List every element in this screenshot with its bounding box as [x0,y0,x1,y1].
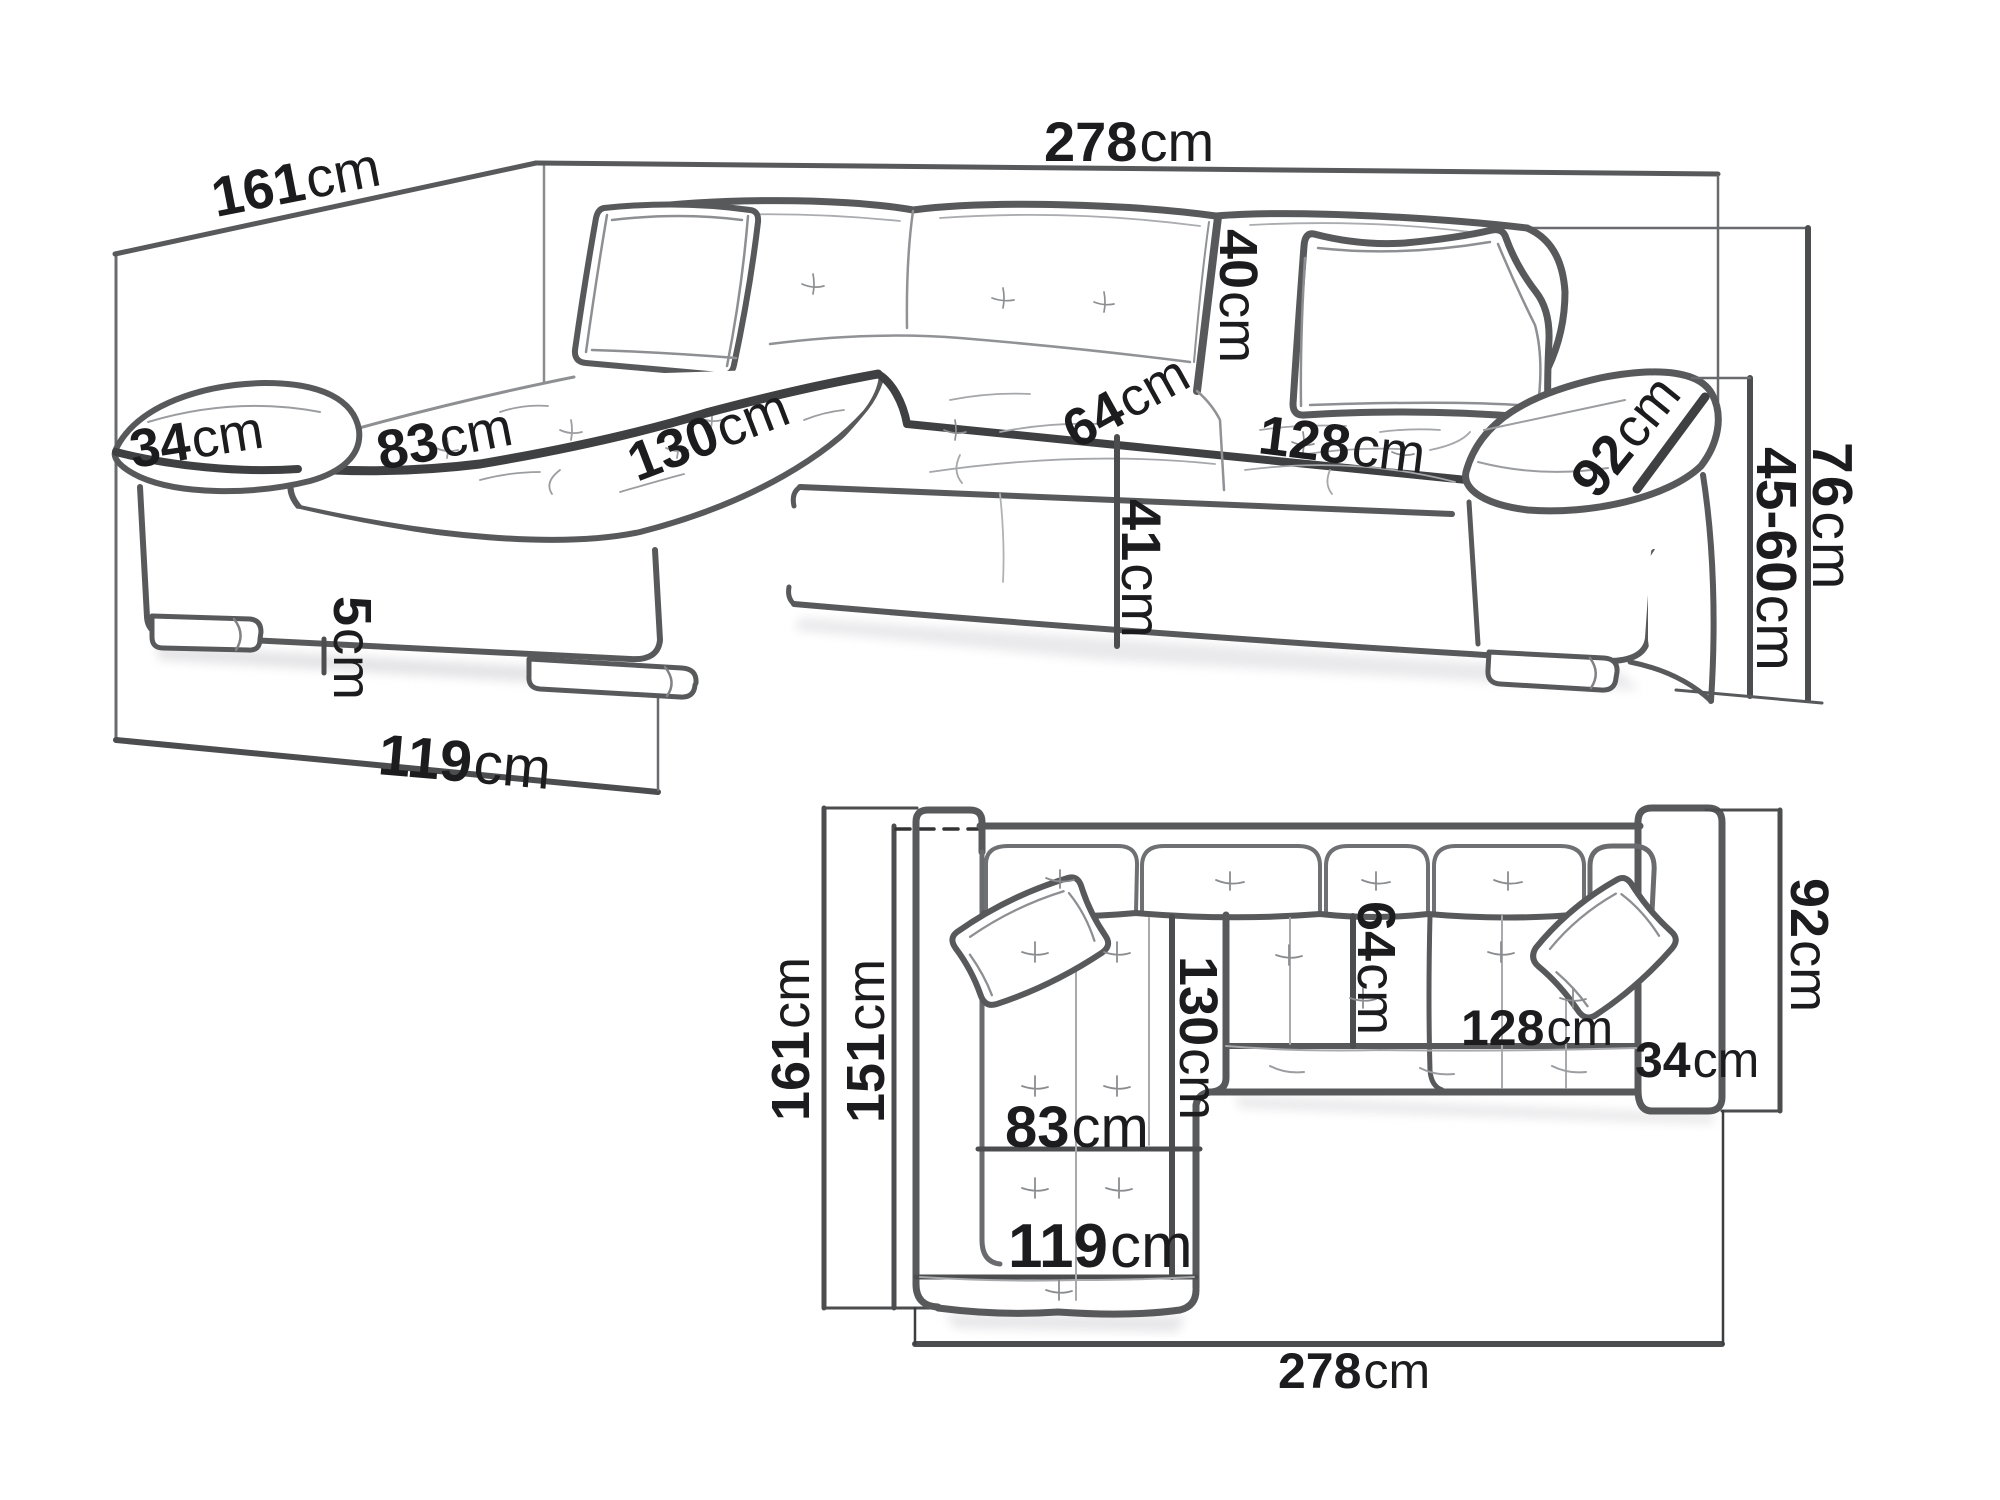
svg-text:64cm: 64cm [1346,901,1406,1035]
svg-text:151cm: 151cm [836,959,896,1123]
svg-text:161cm: 161cm [761,957,821,1121]
svg-text:34cm: 34cm [1635,1032,1759,1088]
svg-text:92cm: 92cm [1779,878,1839,1012]
svg-text:128cm: 128cm [1461,1000,1613,1056]
svg-text:119cm: 119cm [1008,1212,1193,1281]
svg-text:119cm: 119cm [376,722,554,802]
svg-text:278cm: 278cm [1278,1343,1430,1399]
svg-text:130cm: 130cm [1168,956,1228,1120]
svg-text:76cm: 76cm [1800,442,1864,591]
svg-text:45-60cm: 45-60cm [1744,447,1808,671]
svg-text:83cm: 83cm [1005,1095,1149,1160]
svg-text:278cm: 278cm [1044,110,1214,173]
svg-text:40cm: 40cm [1208,229,1268,363]
svg-text:5cm: 5cm [322,596,382,700]
svg-text:41cm: 41cm [1110,499,1173,638]
